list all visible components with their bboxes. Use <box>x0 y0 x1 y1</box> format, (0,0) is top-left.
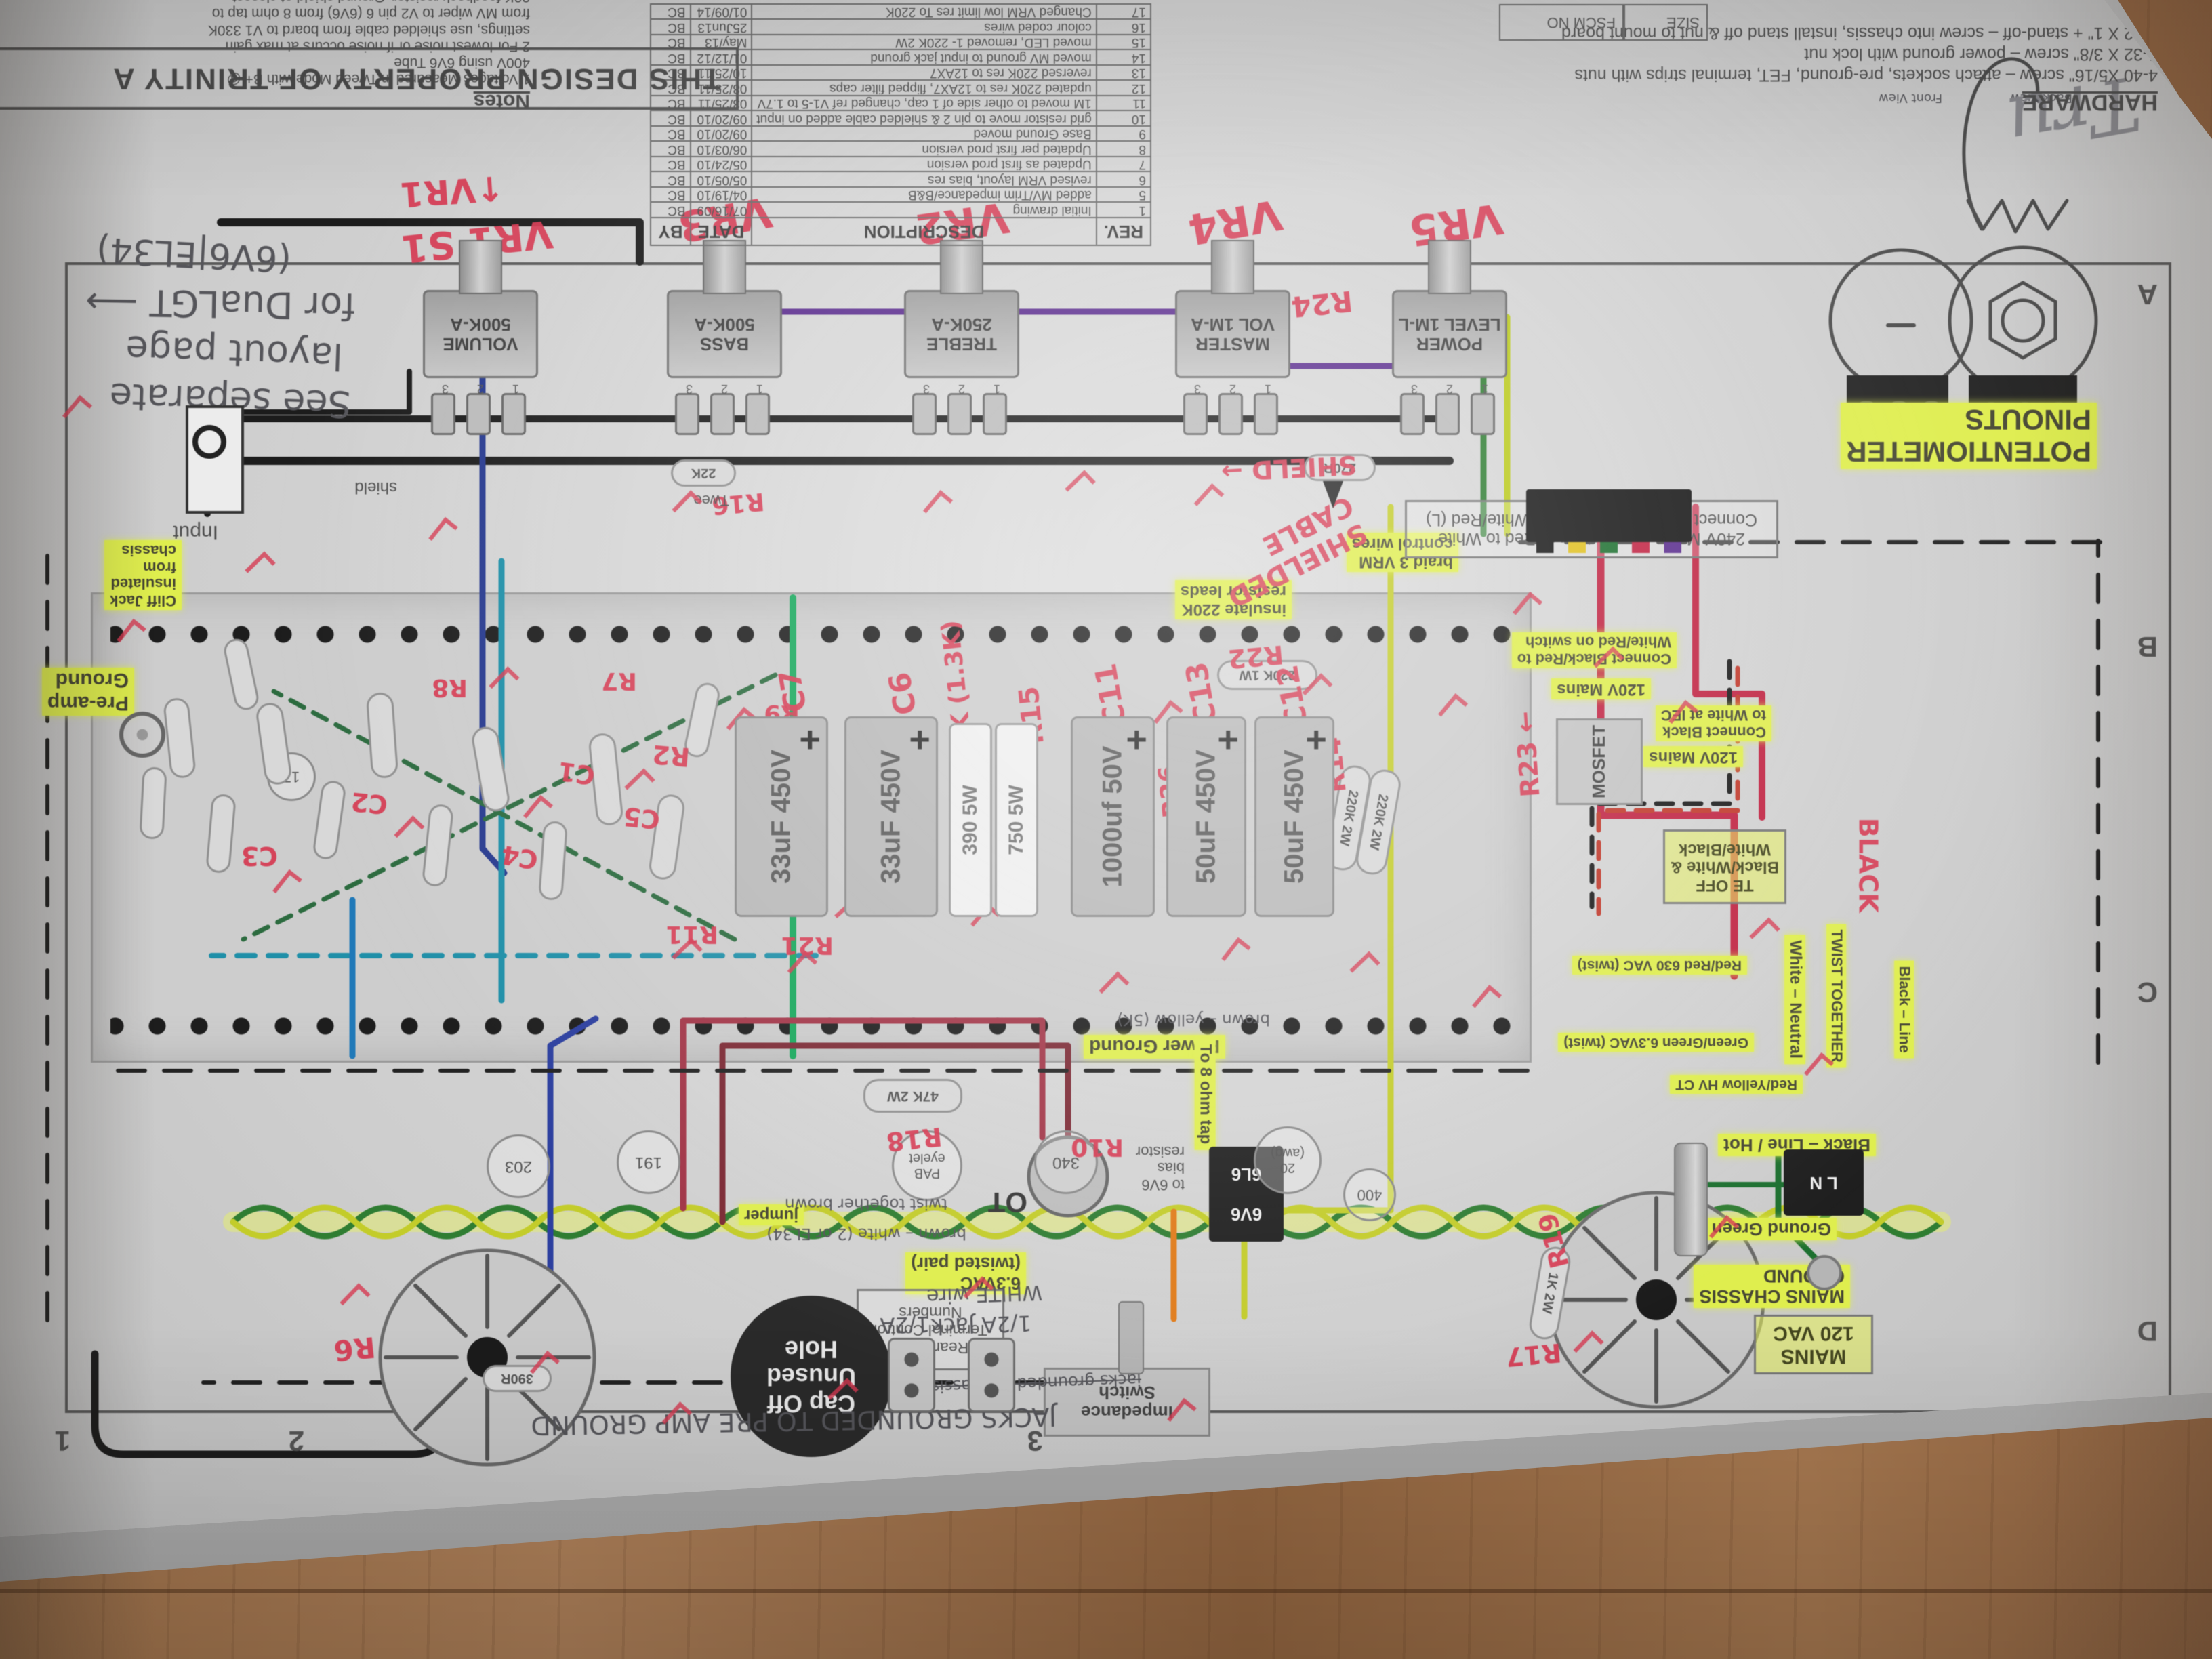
annotation-layer: ABCD4321POTENTIOMETER PINOUTSPre-amp Gro… <box>0 0 2212 1659</box>
pot-lug <box>1435 393 1460 435</box>
label-connect-blackred: Connect Black/Red to White/Red on switch <box>1512 632 1677 668</box>
pot-lug-number: 3 <box>679 382 699 396</box>
rev-cell: 05/24/10 <box>691 157 752 172</box>
rev-header: DESCRIPTION <box>752 218 1096 245</box>
component-value: 1000uf 50V <box>1098 745 1128 887</box>
rev-cell: 04/19/10 <box>691 187 752 203</box>
rev-cell: 14 <box>1097 49 1151 65</box>
label-black-line: Black – Line <box>1894 960 1914 1058</box>
size-label: SIZE <box>1624 4 1708 41</box>
rev-cell: Base Ground moved <box>752 126 1096 142</box>
rev-cell: reversed 220K res to 12AX7 <box>752 65 1096 81</box>
title-block-size-strip: SIZE FSCM NO <box>1499 4 1708 41</box>
pot-lug <box>947 393 972 435</box>
note-brown-white: brown – white (2 or EL34) <box>766 1224 966 1242</box>
note-see-separate-2: layout page <box>125 328 344 377</box>
rev-header: BY <box>651 218 690 245</box>
hardware-notes: HARDWARE 4-40 X5/16" screw – attach sock… <box>1378 22 2158 115</box>
pot-lug <box>1218 393 1243 435</box>
ann-c2: C2 <box>350 787 389 819</box>
preamp-ground-loop <box>119 712 165 758</box>
rev-cell: moved MV ground to input jack ground <box>752 49 1096 65</box>
pot-lug-number: 3 <box>1187 382 1208 396</box>
filter-cap-50uF-450V: 50uF 450V+ <box>1166 716 1246 917</box>
rev-cell: 13 <box>1097 65 1151 81</box>
small-part <box>205 794 237 874</box>
note-mains-120vac: MAINS 120 VAC <box>1754 1315 1873 1374</box>
pot-power-level: 123POWER LEVEL 1M-L <box>1392 245 1507 435</box>
schematic-sheet: ABCD4321POTENTIOMETER PINOUTSPre-amp Gro… <box>0 0 2212 1659</box>
chk <box>1099 971 1129 1002</box>
rev-cell: grid resistor move to pin 2 & shielded c… <box>752 110 1096 126</box>
rev-cell: BC <box>651 141 690 157</box>
notes-line: 22K feedback resistor. Ground shield at … <box>123 0 530 5</box>
pot-lug <box>466 393 491 435</box>
label-twist-together: TWIST TOGETHER <box>1827 924 1847 1068</box>
component-value: 50uF 450V <box>1191 750 1222 884</box>
label-shield: shield <box>354 478 397 496</box>
wood-table-seam <box>0 1589 2212 1593</box>
pot-body-label: POWER LEVEL 1M-L <box>1392 290 1507 378</box>
ann-black: BLACK <box>1853 818 1883 913</box>
component-value: 33uF 450V <box>766 750 797 884</box>
speaker-jack-2 <box>888 1338 935 1412</box>
pot-shaft <box>1428 240 1471 294</box>
label-redred-630: Red/Red 630 VAC (twist) <box>1572 956 1747 975</box>
ann-shield: SHIELD → <box>1221 450 1357 486</box>
pot-lug <box>501 393 526 435</box>
ann-r8: R8 <box>432 674 468 701</box>
rev-cell: 6 <box>1097 171 1151 187</box>
notes-line: settings, use shielded cable from board … <box>123 21 530 37</box>
schematic-drawing: ABCD4321POTENTIOMETER PINOUTSPre-amp Gro… <box>0 0 2212 1659</box>
chk <box>1513 592 1542 623</box>
rev-cell: Updated as first prod version <box>752 157 1096 172</box>
hardware-line: 6-32 X 1" + stand-off – screw into chass… <box>1378 23 2158 43</box>
note-te-off: TE OFF Black/White & White/Black <box>1663 829 1786 904</box>
label-input: Input <box>173 520 218 544</box>
component-value: 750 5W <box>1005 785 1028 855</box>
rev-row: 1Initial drawing07/16/09BC <box>651 202 1151 218</box>
label-greengreen-63: Green/Green 6.3VAC (twist) <box>1558 1033 1754 1052</box>
iec-inlet: L N <box>1784 1149 1864 1216</box>
small-part <box>139 766 167 840</box>
rev-cell: 16 <box>1097 19 1151 35</box>
rev-cell: BC <box>651 187 690 203</box>
rev-row: 17Changed VRM low limit res To 220K01/09… <box>651 4 1151 20</box>
small-part <box>366 692 399 779</box>
zone-number-1: 1 <box>55 1425 70 1457</box>
pot-body-label: VOLUME 500K-A <box>423 290 538 378</box>
rev-cell: BC <box>651 126 690 142</box>
rev-cell: added MV/Trim impedance/B&B <box>752 187 1096 203</box>
ann-c4: C4 <box>499 840 540 874</box>
label-redyellow-hvct: Red/Yellow HV CT <box>1670 1075 1803 1094</box>
rev-cell: 12 <box>1097 80 1151 96</box>
pot-lug <box>1183 393 1208 435</box>
pot-lug <box>710 393 735 435</box>
notes-line: from MV wiper to V2 pin 6 (6V6) from 8 o… <box>123 5 530 21</box>
pot-lug-number: 1 <box>506 382 526 396</box>
chk <box>1749 917 1780 947</box>
small-part <box>422 803 454 887</box>
pot-shaft <box>703 240 746 294</box>
rev-cell: 09/20/10 <box>691 110 752 126</box>
chk <box>489 666 519 697</box>
chk <box>1573 1330 1603 1361</box>
rev-cell: 25Jun13 <box>691 19 752 35</box>
pot-lug-number: 2 <box>714 382 735 396</box>
filter-cap-33uF-450V: 33uF 450V+ <box>735 716 828 917</box>
label-white-neutral: White – Neutral <box>1784 935 1805 1064</box>
rev-cell: 1 <box>1097 202 1151 218</box>
pot-shaft <box>459 240 502 294</box>
label-cliff-jack: Cliff Jack insulated from chassis <box>104 541 182 611</box>
zone-letter-c: C <box>2137 977 2158 1008</box>
ann-c1: C1 <box>556 756 597 790</box>
hardware-title: HARDWARE <box>1378 89 2158 115</box>
pot-bass: 123BASS 500K-A <box>667 245 782 435</box>
filter-cap-33uF-450V: 33uF 450V+ <box>844 716 938 917</box>
pot-volume: 123VOLUME 500K-A <box>423 245 538 435</box>
small-part <box>222 636 260 712</box>
pot-lug-number: 3 <box>435 382 455 396</box>
polarity-plus: + <box>1305 720 1327 760</box>
rev-cell: 07/16/09 <box>691 202 752 218</box>
chk <box>523 795 553 826</box>
component-value: 390 5W <box>959 785 982 855</box>
power-resistor-390-5W: 390 5W <box>949 723 992 917</box>
pot-treble: 123TREBLE 250K-A <box>904 245 1019 435</box>
rev-cell: Updated per first prod version <box>752 141 1096 157</box>
ann-r10: R10 <box>1071 1133 1124 1160</box>
ann-r23: R23 ← <box>1511 710 1545 798</box>
chk <box>1349 951 1380 981</box>
chk <box>1472 985 1502 1016</box>
ann-r24: R24 <box>1290 285 1354 323</box>
pot-body-label: BASS 500K-A <box>667 290 782 378</box>
label-preamp-ground: Pre-amp Ground <box>42 668 134 716</box>
property-note: THIS DESIGN PROPERTY OF TRINITY A <box>0 47 739 110</box>
rev-cell: 01/09/14 <box>691 4 752 20</box>
rev-header: REV. <box>1097 218 1151 245</box>
power-resistor-750-5W: 750 5W <box>995 723 1038 917</box>
rev-cell: 05/05/10 <box>691 171 752 187</box>
label-bias-resistor: to 6V6 bias resistor <box>1136 1143 1185 1193</box>
rev-cell: BC <box>651 19 690 35</box>
revision-table: REV.DESCRIPTIONDATEBY 1Initial drawing07… <box>650 3 1151 246</box>
rev-cell: 15 <box>1097 35 1151 50</box>
pot-lug-number: 3 <box>1404 382 1425 396</box>
note-twist-brown: twist together brown <box>785 1194 947 1212</box>
rev-cell: 09/20/10 <box>691 126 752 142</box>
fuse-holder <box>1674 1143 1708 1256</box>
hardware-line: 4-32 X 3/8" screw – power ground with lo… <box>1378 44 2158 64</box>
pot-lug-number: 2 <box>470 382 491 396</box>
ann-r7: R7 <box>601 667 637 694</box>
filter-cap-1000uf-50V: 1000uf 50V+ <box>1071 716 1155 917</box>
power-transformer-terminals <box>1526 489 1692 542</box>
label-120v-mains-1: 120V Mains <box>1551 678 1651 699</box>
input-jack <box>186 405 244 514</box>
chk <box>62 395 92 426</box>
zone-number-2: 2 <box>289 1425 304 1457</box>
small-part <box>163 697 197 779</box>
small-part <box>470 724 511 813</box>
rev-row: 5added MV/Trim impedance/B&B04/19/10BC <box>651 187 1151 203</box>
rev-cell: 1M moved to other side of 1 cap, changed… <box>752 96 1096 111</box>
ann-r18: R18 <box>885 1122 943 1156</box>
small-part <box>312 779 347 861</box>
rev-cell: 17 <box>1097 4 1151 20</box>
pot-lug <box>912 393 937 435</box>
chk <box>1221 937 1251 968</box>
rev-cell: colour coded wires <box>752 19 1096 35</box>
ann-r2: R2 <box>651 739 691 771</box>
chk <box>428 517 458 548</box>
component-value: 33uF 450V <box>876 750 907 884</box>
rev-cell: 11 <box>1097 96 1151 111</box>
note-brown-yellow: brown – yellow (5K) <box>1117 1010 1270 1027</box>
resistor-22k-twee: 22K <box>671 459 736 487</box>
ann-c6: C6 <box>883 670 923 718</box>
ann-r17: R17 <box>1504 1338 1563 1372</box>
label-120v-mains-2: 120V Mains <box>1643 746 1743 767</box>
rev-cell: moved LED, removed 1- 220K 2W <box>752 35 1096 50</box>
pot-master-vol: 123MASTER VOL 1M-A <box>1175 245 1290 435</box>
label-half-jack-1: 1/2A Jack <box>930 1311 1032 1338</box>
pot-body-label: TREBLE 250K-A <box>904 290 1019 378</box>
label-half-jack-2: 1/2A <box>880 1311 930 1337</box>
chk <box>394 815 424 846</box>
pot-lug-number: 1 <box>987 382 1007 396</box>
pot-lug-number: 2 <box>951 382 972 396</box>
pot-lug-number: 1 <box>1475 382 1495 396</box>
pot-lug <box>1471 393 1495 435</box>
polarity-plus: + <box>909 720 930 760</box>
pot-lug-number: 1 <box>750 382 770 396</box>
rev-cell: BC <box>651 202 690 218</box>
rev-cell: 9 <box>1097 126 1151 142</box>
ann-r19: R19 <box>1533 1210 1574 1271</box>
chassis-ground-lug <box>1807 1255 1842 1290</box>
eyelet-400: 400 <box>1343 1168 1396 1221</box>
wire-gauge-20awg: 20 (awg) <box>1254 1126 1322 1194</box>
chk <box>1438 693 1468 724</box>
pot-lug <box>1254 393 1278 435</box>
eyelet-203: 203 <box>487 1134 550 1198</box>
rev-cell: 06/03/10 <box>691 141 752 157</box>
ann-vr1: ↑VR1 <box>398 169 505 214</box>
eyelet-191: 191 <box>617 1130 680 1194</box>
chk <box>272 869 302 901</box>
chk <box>1065 470 1095 500</box>
impedance-switch-stem <box>1118 1301 1144 1374</box>
resistor-47k-2w: 47K 2W <box>863 1079 962 1113</box>
hardware-line: 4-40 X5/16" screw – attach sockets, pre-… <box>1378 65 2158 85</box>
rev-row: 9Base Ground moved09/20/10BC <box>651 126 1151 142</box>
polarity-plus: + <box>799 720 821 760</box>
rev-cell: Changed VRM low limit res To 220K <box>752 4 1096 20</box>
pot-lug-number: 1 <box>1258 382 1278 396</box>
rev-cell: BC <box>651 110 690 126</box>
rev-cell: BC <box>651 171 690 187</box>
mosfet: MOSFET <box>1556 718 1643 805</box>
photo-of-wiring-diagram: ABCD4321POTENTIOMETER PINOUTSPre-amp Gro… <box>0 0 2212 1659</box>
small-part <box>538 821 568 901</box>
pot-lug <box>1400 393 1425 435</box>
rev-row: 6revised VRM layout, bias res05/05/10BC <box>651 171 1151 187</box>
rev-cell: 7 <box>1097 157 1151 172</box>
rev-cell: 5 <box>1097 187 1151 203</box>
pot-lug <box>745 393 770 435</box>
chk <box>624 768 655 798</box>
rev-cell: Initial drawing <box>752 202 1096 218</box>
pot-lug <box>983 393 1007 435</box>
zone-letter-d: D <box>2137 1315 2158 1347</box>
rev-row: 10grid resistor move to pin 2 & shielded… <box>651 110 1151 126</box>
pot-shaft <box>940 240 983 294</box>
ann-c3: C3 <box>241 841 278 870</box>
note-see-separate-4: (6V6|EL34) <box>96 229 292 279</box>
zone-letter-b: B <box>2137 631 2158 663</box>
rev-cell: BC <box>651 4 690 20</box>
filter-cap-50uF-450V: 50uF 450V+ <box>1254 716 1334 917</box>
pot-shaft <box>1211 240 1254 294</box>
polarity-plus: + <box>1217 720 1239 760</box>
rev-cell: revised VRM layout, bias res <box>752 171 1096 187</box>
component-value: 50uF 450V <box>1279 750 1310 884</box>
ann-c5: C5 <box>622 802 661 834</box>
pot-lug <box>431 393 455 435</box>
zone-letter-a: A <box>2137 279 2158 310</box>
pot-lug-number: 3 <box>916 382 937 396</box>
small-part <box>255 701 293 786</box>
polarity-plus: + <box>1126 720 1147 760</box>
pot-lug <box>675 393 699 435</box>
chk <box>340 1283 370 1313</box>
pot-lug-number: 2 <box>1223 382 1243 396</box>
chk <box>1194 483 1225 514</box>
label-potentiometer-pinouts: POTENTIOMETER PINOUTS <box>1841 403 2097 469</box>
rev-header: DATE <box>691 218 752 245</box>
rev-cell: 10 <box>1097 110 1151 126</box>
rev-row: 16colour coded wires25Jun13BC <box>651 19 1151 35</box>
chk <box>117 619 146 650</box>
chk <box>923 490 953 521</box>
pot-lug-number: 2 <box>1439 382 1460 396</box>
rev-row: 8Updated per first prod version06/03/10B… <box>651 141 1151 157</box>
rev-cell: 8 <box>1097 141 1151 157</box>
rev-cell: BC <box>651 157 690 172</box>
chk <box>245 551 275 581</box>
pot-body-label: MASTER VOL 1M-A <box>1175 290 1290 378</box>
label-ot: OT <box>988 1187 1027 1218</box>
speaker-jack-1 <box>968 1338 1015 1412</box>
note-see-separate-3: for DuaLGT ⟶ <box>85 281 356 326</box>
fscm-label: FSCM NO <box>1499 4 1624 41</box>
rev-row: 7Updated as first prod version05/24/10BC <box>651 157 1151 172</box>
rev-cell: updated 220K res to 12AX7, flipped filte… <box>752 80 1096 96</box>
ann-r6: R6 <box>332 1331 377 1367</box>
label-8ohm-tap: To 8 ohm tap <box>1195 1039 1216 1150</box>
